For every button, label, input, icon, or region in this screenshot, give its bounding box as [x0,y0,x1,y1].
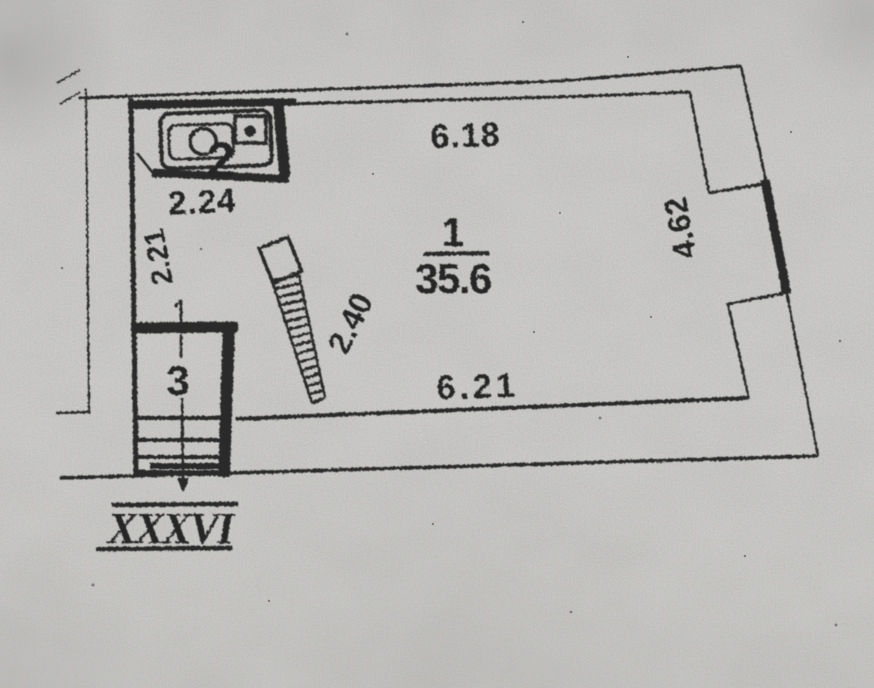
svg-text:2: 2 [207,132,235,188]
svg-text:6.18: 6.18 [430,116,501,156]
svg-text:35.6: 35.6 [415,255,491,302]
svg-text:XXXVI: XXXVI [106,504,236,553]
svg-text:6.21: 6.21 [436,367,519,408]
svg-text:3: 3 [166,357,189,404]
svg-text:1: 1 [442,211,464,255]
svg-text:2.24: 2.24 [167,181,237,222]
